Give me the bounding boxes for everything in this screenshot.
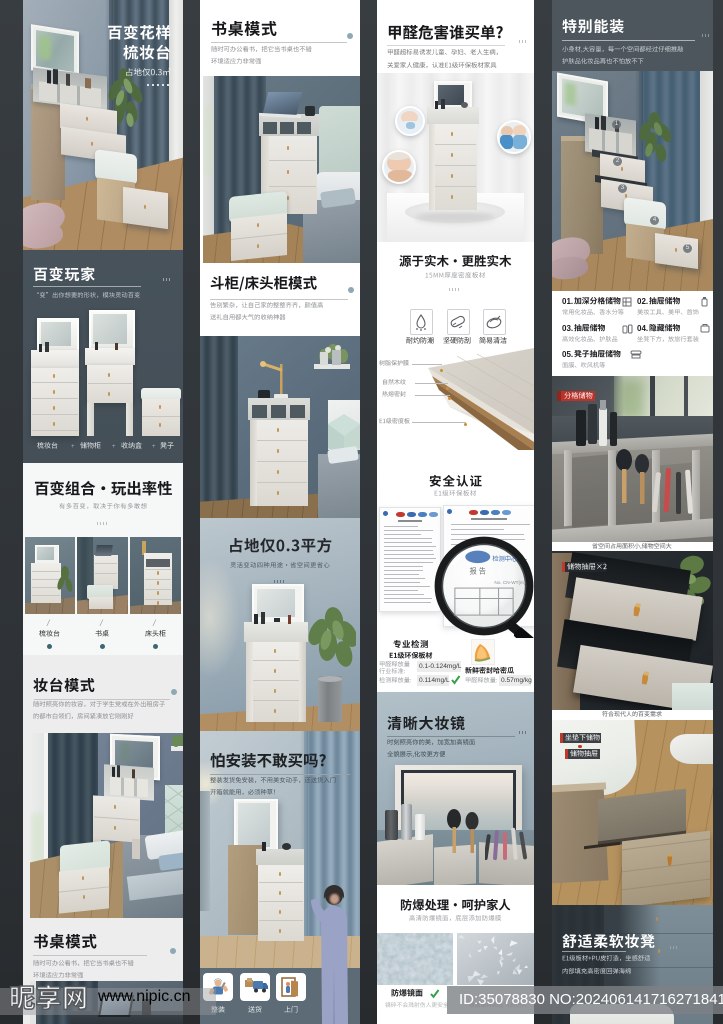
svg-text:报 告: 报 告 <box>469 567 486 576</box>
svg-text:检测中心: 检测中心 <box>492 555 518 563</box>
svg-text:No. CN-WT(m): No. CN-WT(m) <box>494 580 525 585</box>
